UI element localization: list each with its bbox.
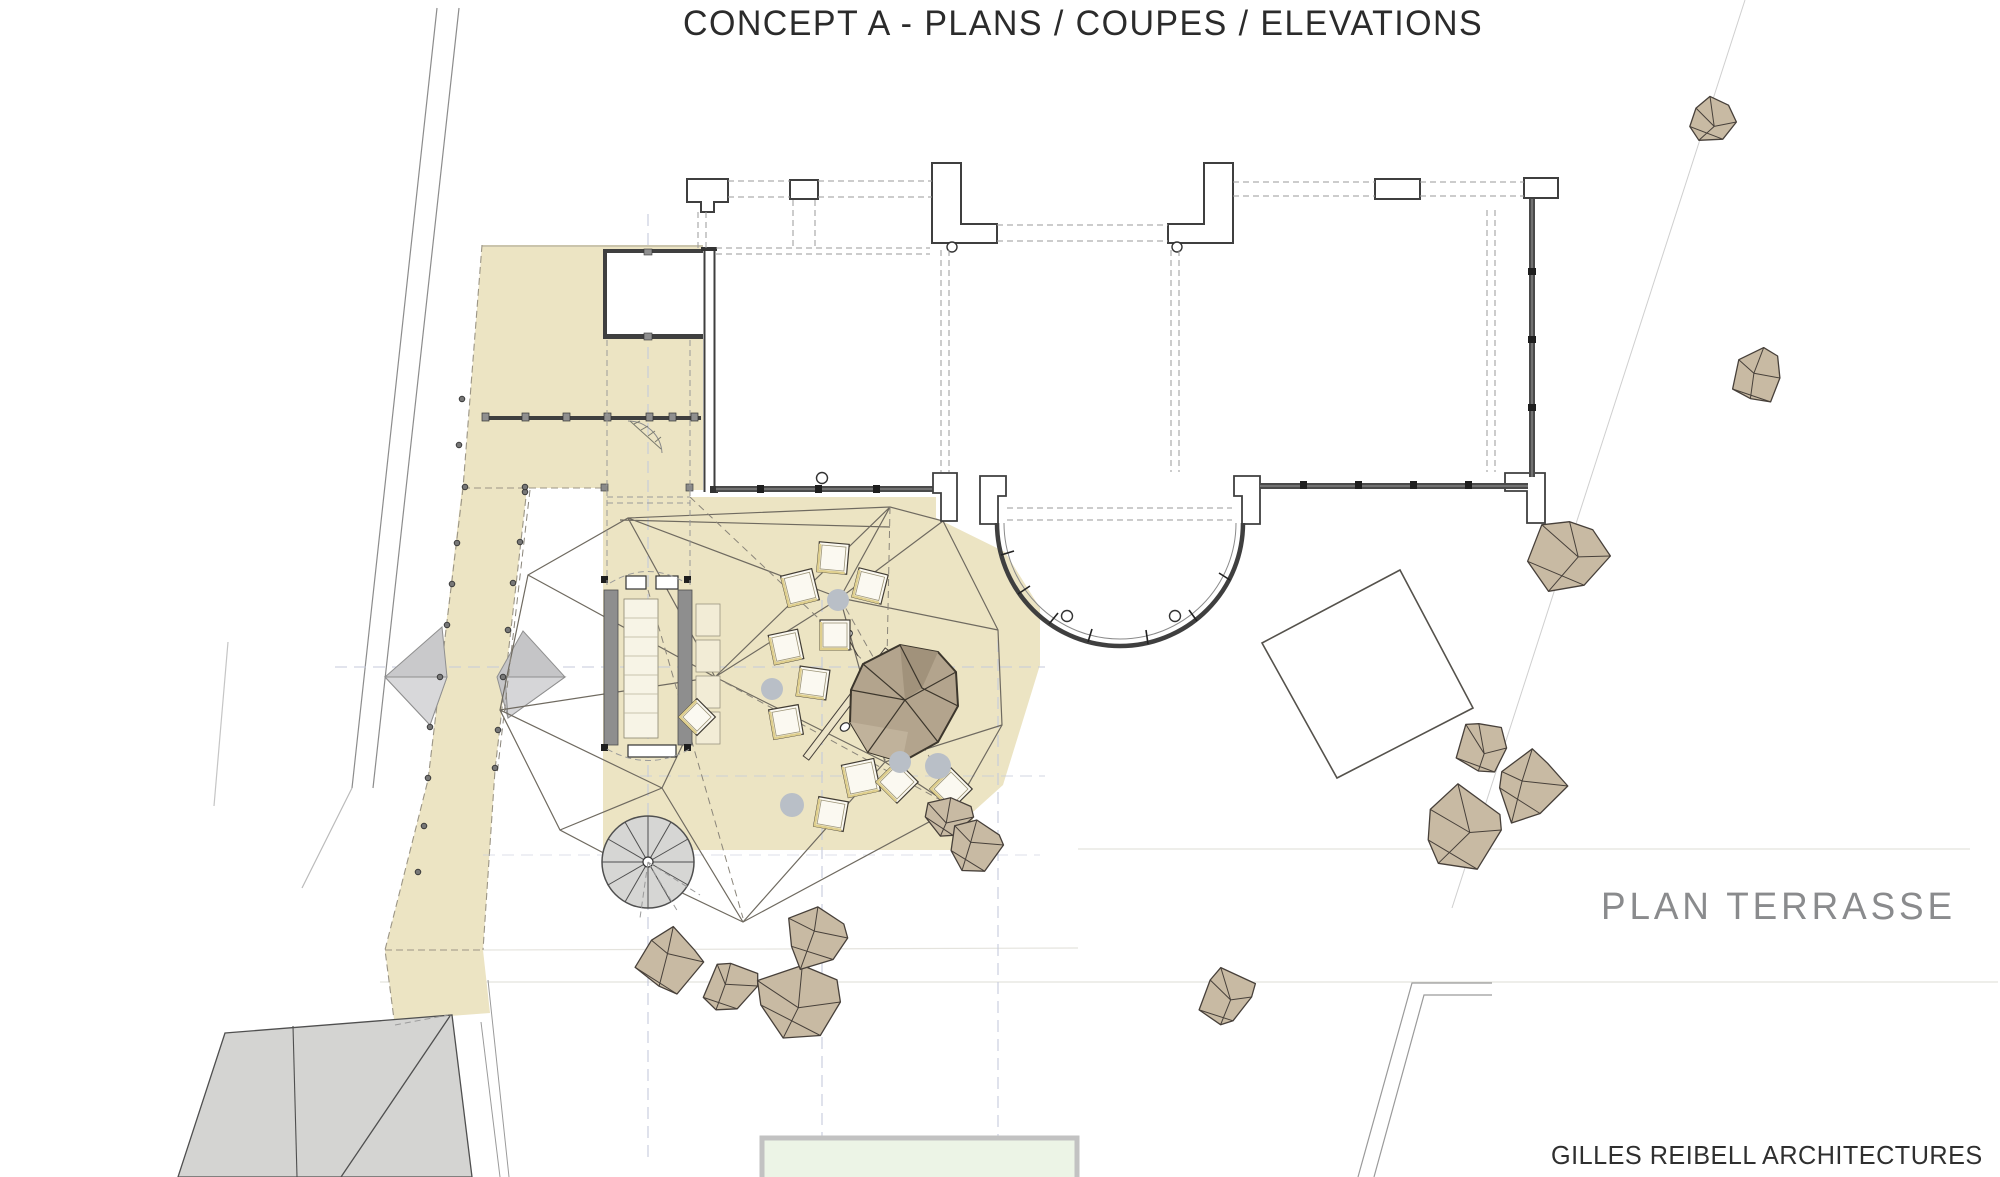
rock — [1199, 968, 1255, 1025]
pouf — [827, 589, 849, 611]
rock — [635, 927, 704, 994]
post-dot — [517, 539, 523, 545]
table — [852, 568, 888, 604]
bottom-right-path — [1358, 983, 1492, 1177]
table — [781, 569, 820, 608]
post-dot — [510, 580, 516, 586]
drawing-sheet: CONCEPT A - PLANS / COUPES / ELEVATIONS … — [0, 0, 2000, 1177]
square-pavilion — [1262, 570, 1473, 778]
post-dot — [415, 869, 421, 875]
sheet-title: CONCEPT A - PLANS / COUPES / ELEVATIONS — [683, 4, 1483, 44]
post-dot — [492, 765, 498, 771]
table — [841, 758, 880, 797]
post-dot — [421, 823, 427, 829]
table — [820, 620, 850, 650]
rock — [1528, 522, 1611, 592]
post-dot — [454, 540, 460, 546]
post-dot — [462, 484, 468, 490]
road-edges — [214, 8, 459, 888]
pool — [762, 1138, 1077, 1177]
post-dot — [500, 674, 506, 680]
site-plan — [0, 0, 2000, 1177]
post-dot — [449, 581, 455, 587]
post-dot — [425, 775, 431, 781]
pouf — [889, 751, 911, 773]
table — [796, 666, 830, 700]
rock — [703, 963, 757, 1009]
post-dot — [505, 627, 511, 633]
pouf — [761, 678, 783, 700]
post-dot — [522, 484, 528, 490]
rock — [951, 820, 1003, 871]
post-dot — [437, 674, 443, 680]
table — [768, 629, 804, 665]
drawing-label: PLAN TERRASSE — [1601, 886, 1956, 929]
pouf — [925, 753, 951, 779]
rock — [1500, 749, 1568, 823]
rock — [758, 965, 841, 1038]
table — [769, 705, 804, 740]
post-dot — [495, 727, 501, 733]
post-dot — [456, 442, 462, 448]
post-dot — [444, 622, 450, 628]
table — [817, 542, 850, 575]
rock — [1456, 724, 1506, 772]
rock — [1428, 784, 1501, 869]
pouf — [780, 793, 804, 817]
table — [814, 797, 849, 832]
post-dot — [427, 724, 433, 730]
firm-name: GILLES REIBELL ARCHITECTURES — [1551, 1140, 1983, 1171]
post-dot — [459, 396, 465, 402]
rock — [789, 907, 848, 970]
rock — [1690, 96, 1737, 140]
rock — [1733, 348, 1780, 402]
